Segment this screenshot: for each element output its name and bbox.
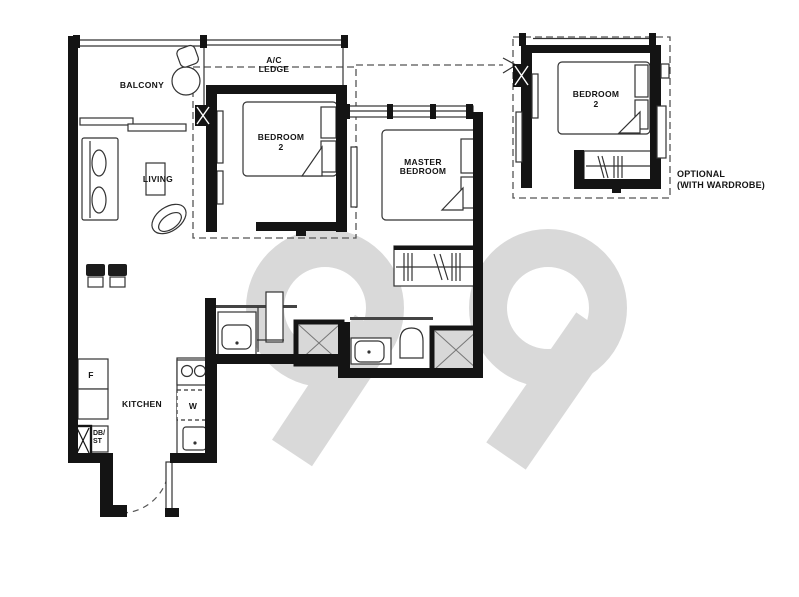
- pillow: [635, 65, 648, 97]
- wardrobe: [394, 246, 478, 286]
- dining-stool: [108, 264, 127, 276]
- balcony-sliding-door: [80, 118, 133, 125]
- wall-segment: [574, 179, 661, 189]
- door-swing-arc: [122, 465, 169, 513]
- master-bedroom-furniture: [382, 130, 478, 286]
- sofa-cushion: [92, 150, 106, 176]
- wall-segment: [205, 358, 217, 463]
- sink-drain: [367, 350, 370, 353]
- bedroom2-wall-glazing: [217, 111, 223, 163]
- wall-segment: [100, 505, 127, 517]
- wall-segment: [68, 36, 78, 463]
- bath-partition-line: [350, 317, 433, 320]
- door-stop-tick: [612, 188, 621, 193]
- dining-stool-base: [110, 277, 125, 287]
- wall-stub: [661, 64, 669, 78]
- sofa-cushion: [92, 187, 106, 213]
- floorplan-canvas: BALCONY A/C LEDGE LIVING BEDROOM 2 MASTE…: [0, 0, 799, 597]
- railing-tick: [341, 35, 348, 48]
- living-label: LIVING: [143, 174, 173, 184]
- wall-segment: [206, 85, 347, 94]
- kitchen-label: KITCHEN: [122, 399, 162, 409]
- optional-note: OPTIONAL: [677, 169, 725, 179]
- wall-glazing: [532, 74, 538, 118]
- master-bedroom-label: BEDROOM: [400, 166, 447, 176]
- db-store-label: ST: [93, 438, 103, 445]
- railing-tick: [649, 33, 656, 46]
- bath-partition-line: [216, 305, 297, 308]
- sink-drain: [193, 441, 196, 444]
- sink-drain: [235, 341, 238, 344]
- bedroom2-label: 2: [278, 142, 283, 152]
- stove-burner: [182, 366, 193, 377]
- door-stop-tick: [296, 229, 306, 236]
- balcony-chair: [175, 44, 199, 68]
- wall-segment: [521, 45, 660, 53]
- wall-glazing: [657, 106, 666, 158]
- kitchen-sink: [183, 427, 206, 450]
- wall-segment: [574, 150, 584, 188]
- window-mullion-tick: [466, 104, 473, 119]
- lounge-chair: [147, 198, 192, 239]
- ac-ledge-label: LEDGE: [259, 64, 290, 74]
- entrance: [122, 462, 172, 513]
- railing-tick: [519, 33, 526, 46]
- db-store-label: DB/: [93, 430, 105, 437]
- master-wall-panel: [351, 147, 357, 207]
- bifold-door: [266, 292, 283, 342]
- wardrobe-top-rail: [394, 246, 478, 250]
- washer-label: W: [189, 401, 198, 411]
- wall-segment: [205, 354, 350, 364]
- arrow-head-icon: [503, 58, 516, 65]
- wall-segment: [165, 508, 179, 517]
- optional-note: (WITH WARDROBE): [677, 180, 765, 190]
- pillow: [321, 107, 336, 138]
- wall-segment: [170, 453, 216, 463]
- wall-segment: [336, 85, 347, 232]
- wall-segment: [338, 322, 350, 374]
- sink: [222, 325, 251, 349]
- optional-bedroom2-label: BEDROOM: [573, 89, 620, 99]
- fridge-label: F: [88, 370, 94, 380]
- door-leaf: [166, 462, 172, 512]
- window-mullion-tick: [387, 104, 393, 119]
- balcony-sliding-door: [128, 124, 186, 131]
- balcony-label: BALCONY: [120, 80, 164, 90]
- bedroom2-label: BEDROOM: [258, 132, 305, 142]
- window-mullion-tick: [430, 104, 436, 119]
- dining-stool: [86, 264, 105, 276]
- toilet: [400, 328, 423, 358]
- floorplan-page: BALCONY A/C LEDGE LIVING BEDROOM 2 MASTE…: [0, 0, 799, 597]
- wall-glazing: [516, 112, 522, 162]
- dining-stool-base: [88, 277, 103, 287]
- bedroom2-wall-glazing: [217, 171, 223, 204]
- optional-inset: [513, 33, 669, 193]
- wall-segment: [68, 453, 105, 463]
- kitchen-counter: [78, 389, 108, 419]
- optional-bedroom2-label: 2: [593, 99, 598, 109]
- balcony-table: [172, 67, 200, 95]
- railing-tick: [200, 35, 207, 48]
- stove-burner: [195, 366, 206, 377]
- wall-segment: [473, 112, 483, 378]
- wall-segment: [205, 298, 216, 360]
- pillow: [321, 141, 336, 172]
- wall-segment: [338, 368, 483, 378]
